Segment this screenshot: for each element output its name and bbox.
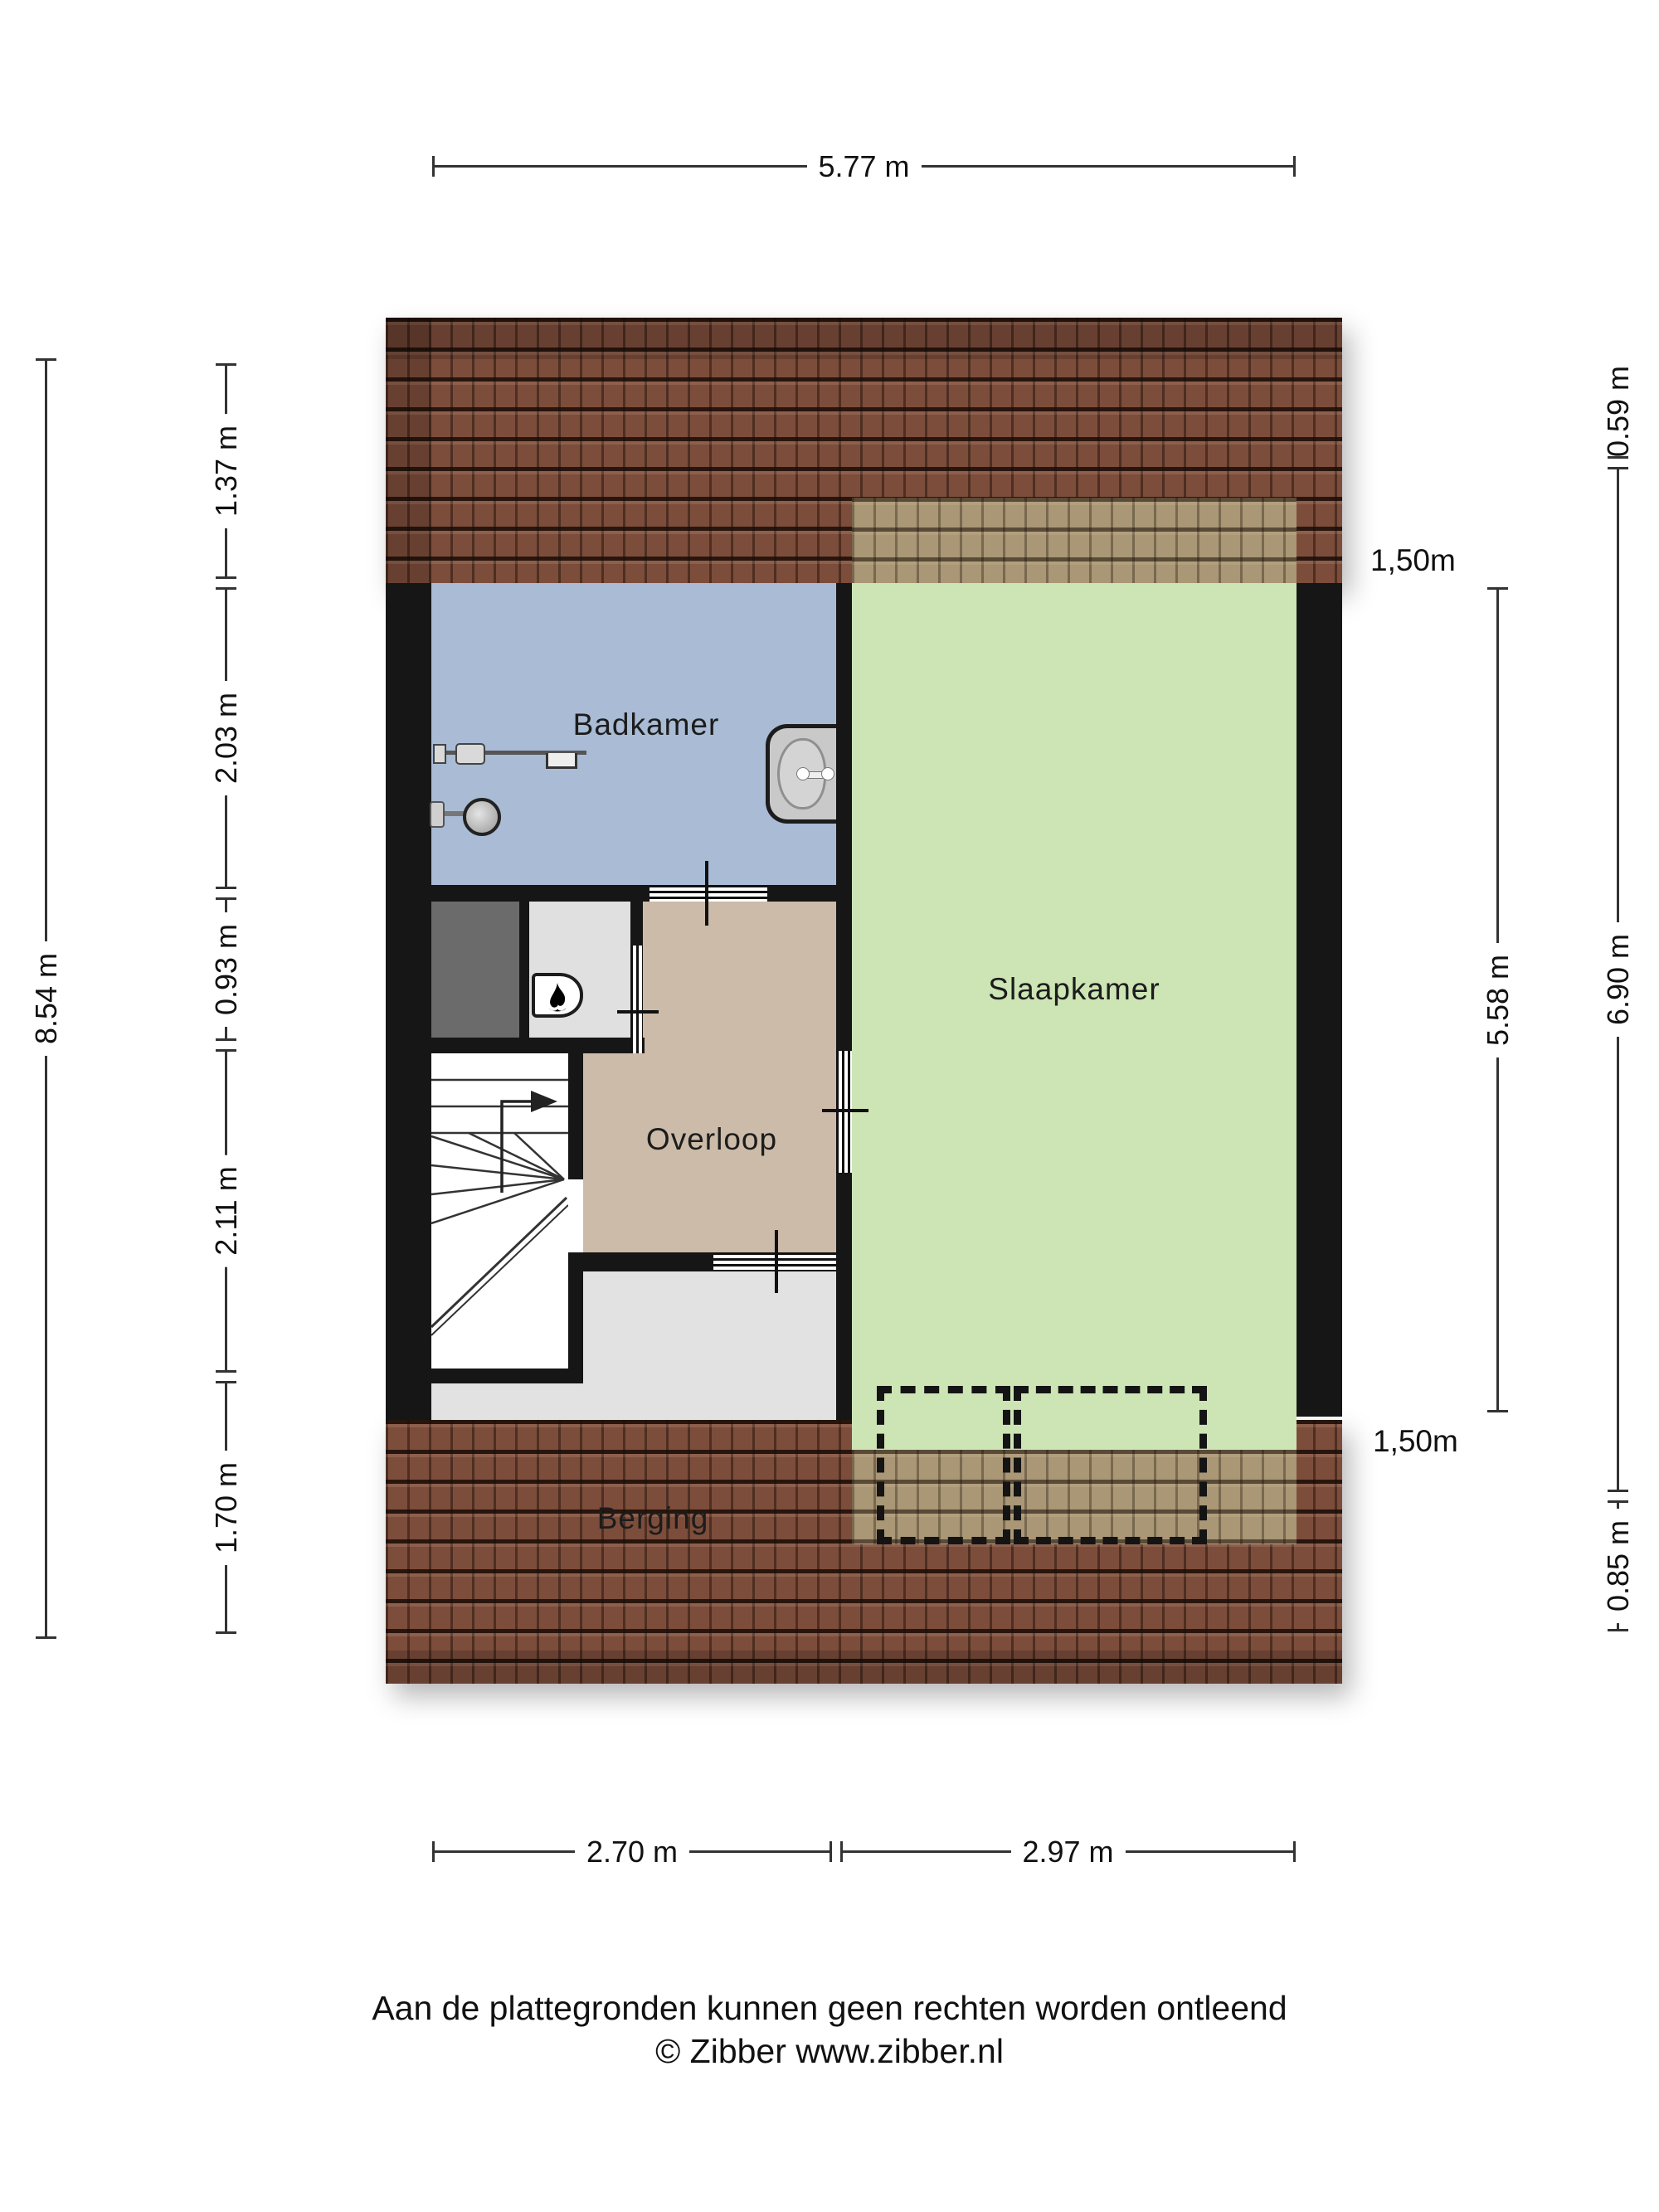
dim-left-seg-4: 2.11 m xyxy=(225,1050,227,1372)
roof-top-edge-shade xyxy=(386,318,1342,359)
shower-rail-bracket xyxy=(433,744,446,764)
shower-head-icon xyxy=(463,798,501,836)
berging-north-wall xyxy=(583,1252,713,1271)
middle-band-south-wall xyxy=(431,1038,645,1053)
dim-right-outer-middle: 6.90 m xyxy=(1617,468,1619,1491)
badkamer-south-wall-left xyxy=(431,885,649,902)
closet-east-wall xyxy=(630,902,643,946)
dim-right-outer-top-label: 0.59 m xyxy=(1598,354,1639,469)
dim-top: 5.77 m xyxy=(433,165,1295,168)
footer-disclaimer: Aan de plattegronden kunnen geen rechten… xyxy=(0,1989,1659,2028)
dim-left-seg-5: 1.70 m xyxy=(225,1382,227,1633)
shower-rail-slider xyxy=(455,743,485,765)
overloop-floor-upper xyxy=(643,902,836,1053)
slaapkamer-sloped-ceiling-top xyxy=(852,498,1297,583)
dim-bottom-right: 2.97 m xyxy=(841,1850,1295,1853)
dim-left-seg-1: 1.37 m xyxy=(225,364,227,578)
dim-bottom-right-label: 2.97 m xyxy=(1010,1831,1125,1873)
roof-left-edge-shade xyxy=(386,318,431,583)
outer-wall-left xyxy=(386,583,431,1420)
roof-bottom-edge-shade xyxy=(386,1650,1342,1684)
closet-door-tick xyxy=(617,1010,659,1014)
dim-bottom-left-label: 2.70 m xyxy=(575,1831,689,1873)
outer-wall-right xyxy=(1297,583,1342,1417)
stairs-east-wall-lower xyxy=(568,1252,583,1369)
badkamer-door-tick xyxy=(705,861,708,926)
berging-door-tick xyxy=(775,1230,778,1293)
dim-right-outer-top: 0.59 m xyxy=(1617,365,1619,458)
slaapkamer-label: Slaapkamer xyxy=(988,972,1160,1007)
dim-right-inner: 5.58 m xyxy=(1496,588,1499,1412)
badkamer-door xyxy=(649,885,767,902)
headroom-label-top: 1,50m xyxy=(1370,543,1456,578)
shower-hook xyxy=(546,753,577,769)
footer-copyright: © Zibber www.zibber.nl xyxy=(0,2032,1659,2071)
berging-label: Berging xyxy=(597,1501,709,1536)
stairs-east-wall-upper xyxy=(568,1038,583,1179)
boiler-flame-icon xyxy=(545,983,570,1013)
dim-top-label: 5.77 m xyxy=(806,146,921,187)
headroom-label-bottom: 1,50m xyxy=(1373,1424,1458,1459)
boiler-icon xyxy=(532,973,583,1018)
stairs-door-opening xyxy=(568,1179,583,1252)
shower-wall-mount xyxy=(430,801,445,828)
dim-right-outer-bottom: 0.85 m xyxy=(1617,1501,1619,1631)
divider-wall-center-upper xyxy=(836,583,852,1051)
dim-left-seg-1-label: 1.37 m xyxy=(206,414,247,528)
floorplan-canvas: Badkamer Slaapkamer Overloop Berging 5.7… xyxy=(0,0,1659,2212)
dim-left-outer-label: 8.54 m xyxy=(26,941,67,1056)
berging-floor-under-stairs xyxy=(431,1383,583,1420)
closet-west-wall xyxy=(519,902,529,1038)
dim-left-seg-3: 0.93 m xyxy=(225,898,227,1040)
badkamer-south-wall-right xyxy=(767,885,836,902)
slaapkamer-door-tick xyxy=(822,1109,868,1112)
dim-left-seg-4-label: 2.11 m xyxy=(206,1155,247,1266)
sink-icon xyxy=(766,724,836,824)
dim-right-outer-middle-label: 6.90 m xyxy=(1598,922,1639,1037)
roof-window-outline-left xyxy=(877,1386,1010,1544)
voorzolder-dark-room-floor xyxy=(431,902,519,1038)
dim-right-inner-label: 5.58 m xyxy=(1477,942,1519,1057)
berging-floor xyxy=(583,1271,836,1420)
overloop-label: Overloop xyxy=(646,1122,777,1157)
dim-left-seg-2-label: 2.03 m xyxy=(206,681,247,795)
stairs-south-wall xyxy=(431,1369,583,1383)
roof-window-outline-right xyxy=(1014,1386,1207,1544)
dim-right-outer-bottom-label: 0.85 m xyxy=(1598,1509,1639,1623)
dim-left-outer: 8.54 m xyxy=(45,359,47,1638)
closet-door xyxy=(630,946,643,1053)
dim-bottom-left: 2.70 m xyxy=(433,1850,831,1853)
badkamer-label: Badkamer xyxy=(573,707,720,742)
slaapkamer-floor xyxy=(852,583,1297,1450)
dim-left-seg-2: 2.03 m xyxy=(225,588,227,888)
dim-left-seg-5-label: 1.70 m xyxy=(206,1450,247,1564)
dim-left-seg-3-label: 0.93 m xyxy=(206,912,247,1026)
stairs xyxy=(431,1053,568,1369)
divider-wall-center-lower xyxy=(836,1173,852,1420)
